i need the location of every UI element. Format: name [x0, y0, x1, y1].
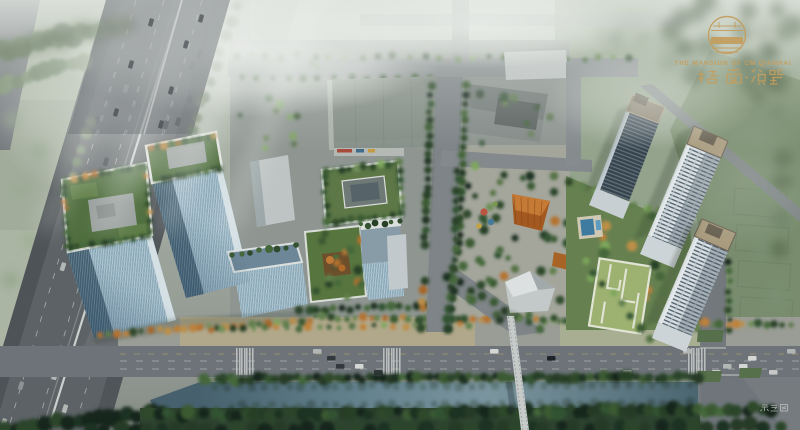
svg-text:THE MANSION OF CM QIANHAI: THE MANSION OF CM QIANHAI: [674, 60, 791, 67]
